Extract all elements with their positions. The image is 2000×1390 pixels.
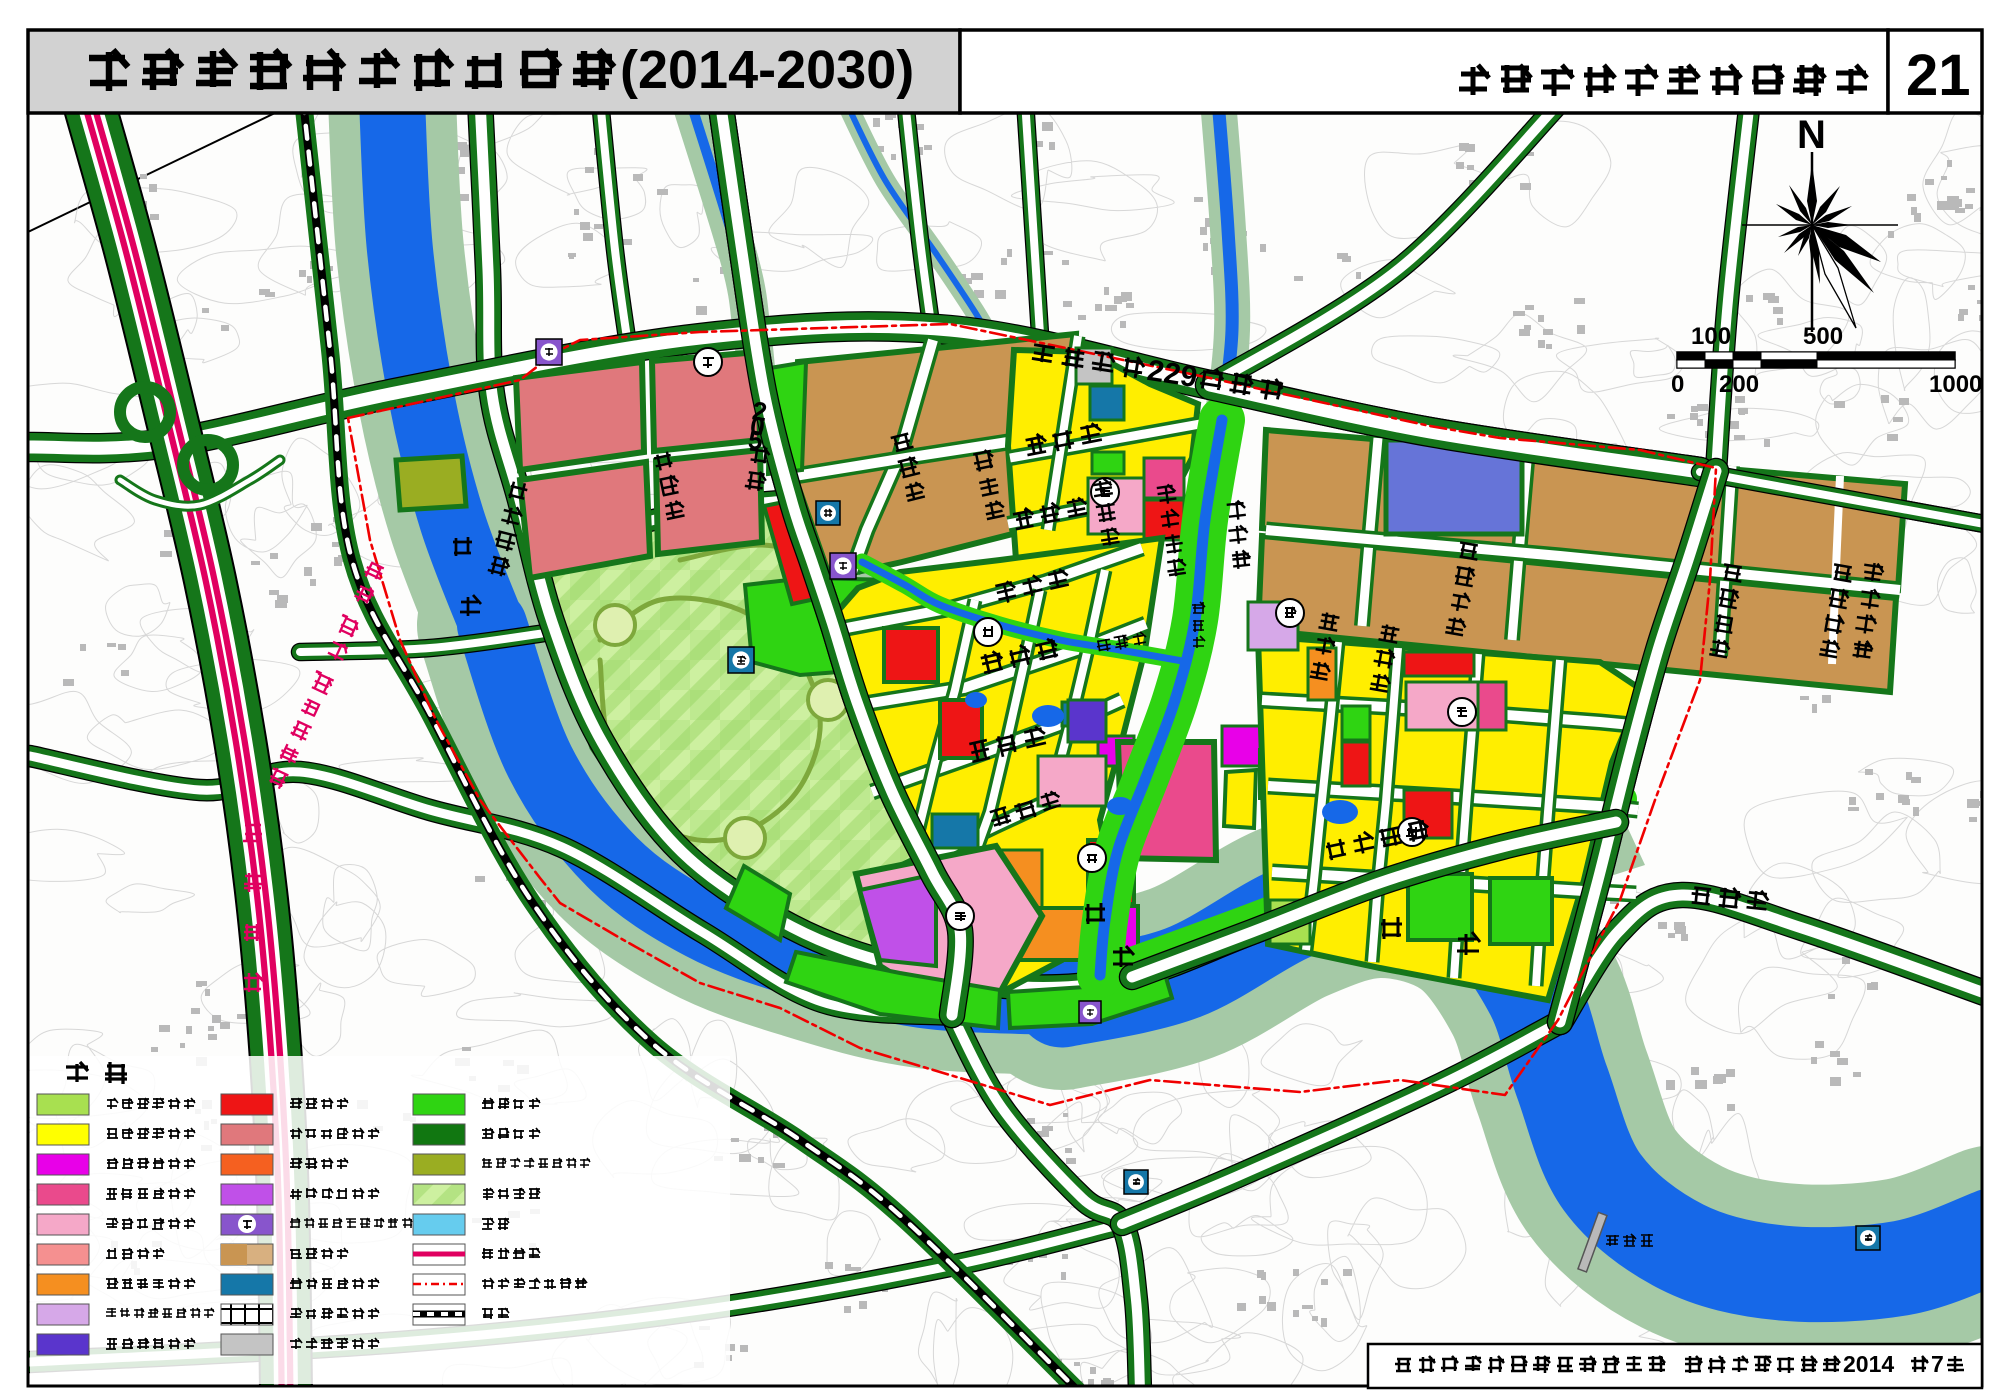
- svg-text:2014: 2014: [1843, 1351, 1894, 1377]
- svg-text:N: N: [1797, 113, 1826, 157]
- svg-text:21: 21: [1906, 43, 1971, 108]
- svg-text:500: 500: [1803, 323, 1843, 350]
- svg-text:1000: 1000: [1929, 371, 1982, 398]
- svg-text:(2014-2030): (2014-2030): [620, 40, 914, 100]
- svg-text:200: 200: [1719, 371, 1759, 398]
- svg-text:7: 7: [1931, 1351, 1944, 1377]
- svg-text:100: 100: [1691, 323, 1731, 350]
- svg-text:0: 0: [1671, 371, 1684, 398]
